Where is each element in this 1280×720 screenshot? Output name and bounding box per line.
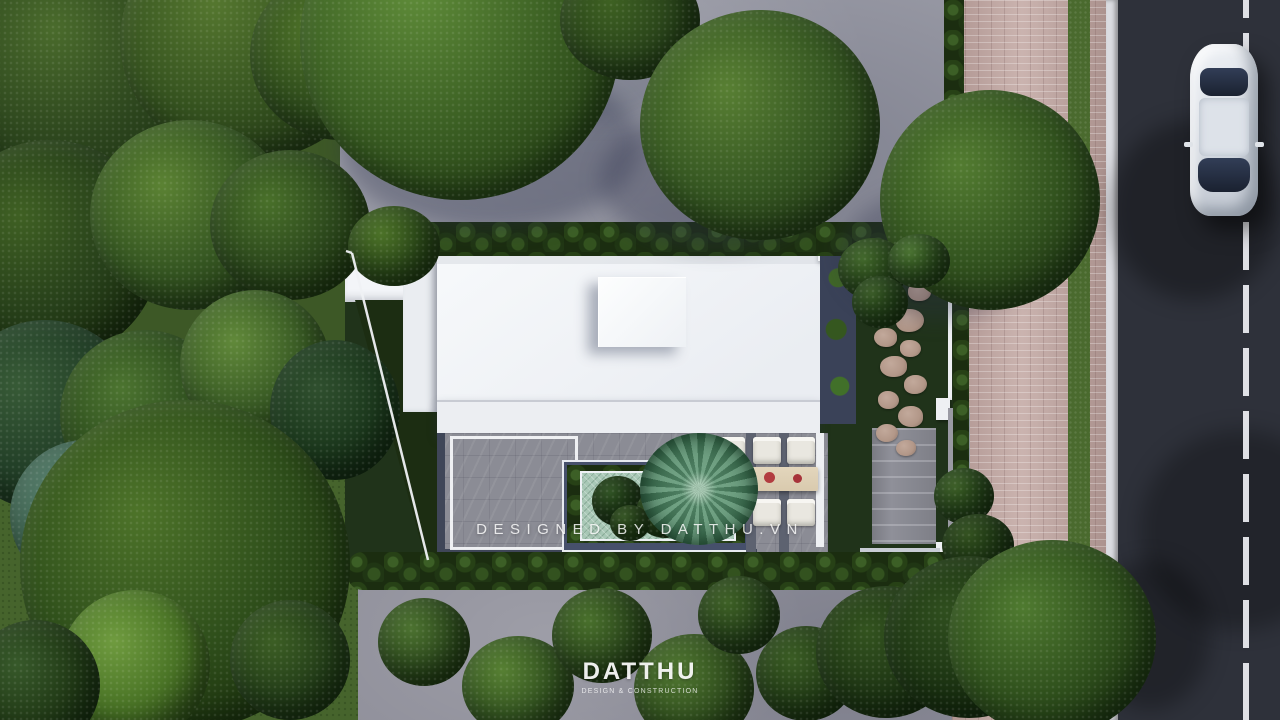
site-plan-render: DESIGNED BY DATTHU.VN DATTHU DESIGN & CO… <box>0 0 1280 720</box>
stepping-stone <box>898 406 923 427</box>
brand-name: DATTHU <box>0 658 1280 686</box>
stepping-stone <box>878 391 899 409</box>
car <box>1190 44 1258 216</box>
roof-lower-band <box>437 400 820 434</box>
watermark-text: DESIGNED BY DATTHU.VN <box>476 521 804 538</box>
stepping-stone <box>900 340 921 357</box>
stepping-stone <box>880 356 907 377</box>
stepping-stone <box>896 440 916 456</box>
stepping-stone <box>874 328 897 347</box>
stepping-stone <box>876 424 898 442</box>
hedge-row-bottom <box>348 552 960 590</box>
dining-chair <box>753 437 781 464</box>
car-windshield <box>1198 158 1250 192</box>
dining-chair <box>787 437 815 464</box>
brand-tagline: DESIGN & CONSTRUCTION <box>0 688 1280 695</box>
brand-logo: DATTHU DESIGN & CONSTRUCTION <box>0 658 1280 695</box>
forest-tree <box>210 150 370 300</box>
car-roof <box>1199 98 1249 156</box>
car-rear-window <box>1200 68 1248 96</box>
skylight-box <box>598 277 686 347</box>
garden-shrub <box>888 234 950 288</box>
car-mirror <box>1184 142 1193 147</box>
garden-shrub <box>852 276 908 328</box>
yard-tree-foliage <box>348 206 440 286</box>
court-edge-left <box>437 433 445 559</box>
yard-tree <box>640 10 880 240</box>
car-mirror <box>1255 142 1264 147</box>
watermark: DESIGNED BY DATTHU.VN <box>0 521 1280 538</box>
